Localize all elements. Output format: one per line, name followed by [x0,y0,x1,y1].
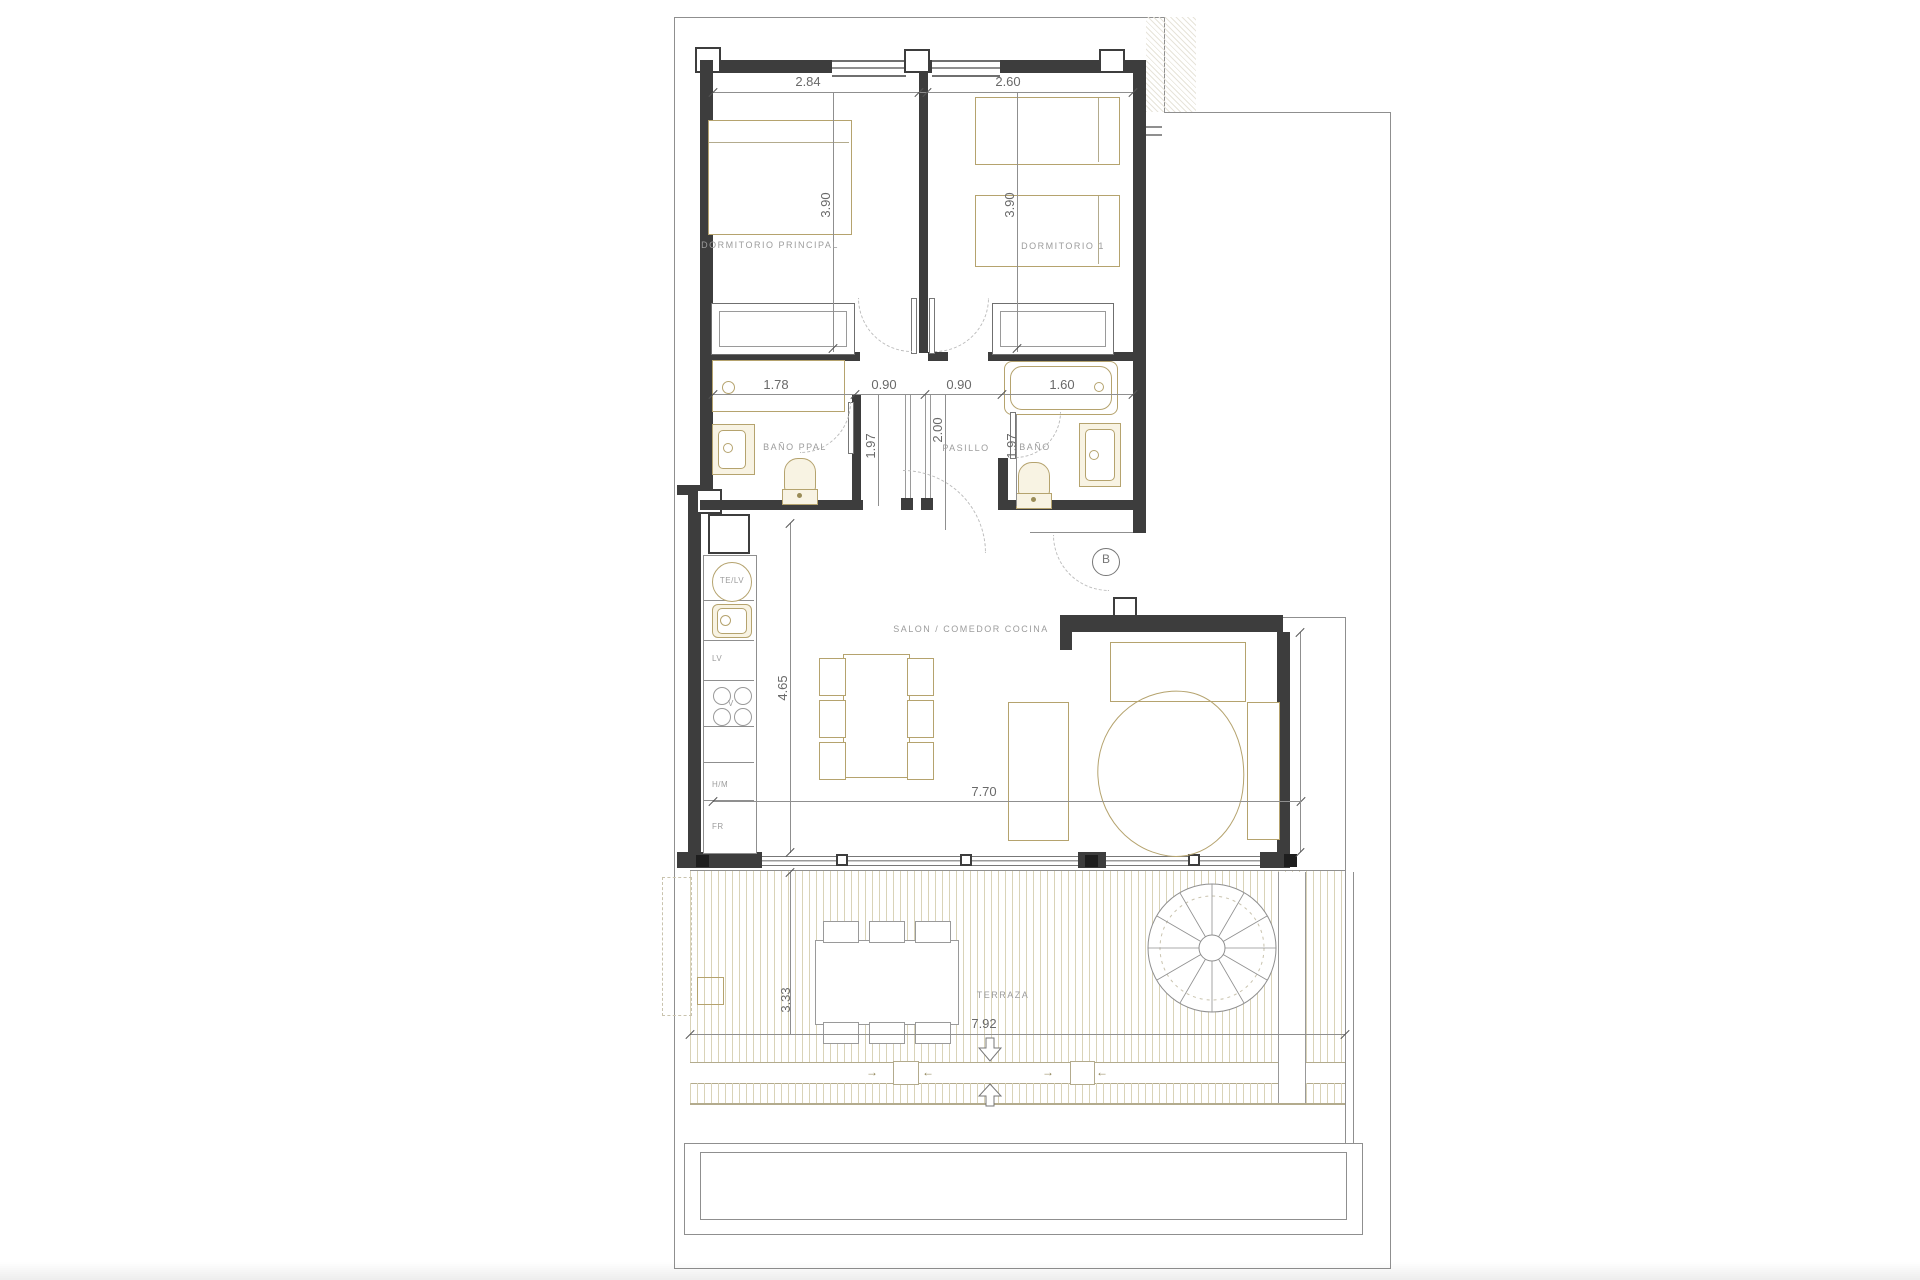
terrace-deck-end-line [690,1103,1345,1105]
dim-line [713,801,1301,802]
hob-burner [734,687,752,705]
site-border-right [1390,112,1391,1269]
wall-line-right-ext [1283,617,1345,618]
label-bano: BAÑO [995,442,1075,452]
slide-arrow-left: ← [922,1065,934,1079]
rug-blob [1086,681,1256,866]
sliding-glass-door [762,856,1078,866]
floor-plan: B [0,0,1920,1280]
bathtub-drain [1094,382,1104,392]
dim-salon-depth: 4.65 [775,663,791,713]
terrace-left-dashed-zone [662,877,692,1016]
mullion [1188,854,1200,866]
label-dorm-principal: DORMITORIO PRINCIPAL [680,240,860,250]
lower-terrace-band-inner [700,1152,1347,1220]
dim-bano-ppal-depth: 1.97 [863,421,879,471]
hob-label: V [728,699,734,708]
dining-chair [907,658,934,696]
dining-table [843,654,910,778]
kitchen-divider [704,680,754,681]
terrace-table [815,940,959,1025]
neighbour-hatch [1146,17,1196,112]
chaise-unit [1247,702,1280,840]
kitchen-sink-drain [720,615,731,626]
up-arrow-icon [975,1083,1005,1107]
boundary-line [1353,872,1354,1143]
terrace-chair [823,921,859,943]
terrace-chair [823,1022,859,1044]
dim-dorm1-depth: 3.90 [1002,180,1018,230]
slide-arrow-right: → [866,1065,878,1079]
dim-line [713,92,1133,93]
wall-entry-top [1060,615,1283,632]
site-border-step-h [1164,112,1390,113]
sideboard [1008,702,1069,841]
party-wall-tick [1146,126,1162,128]
hob-burner [734,708,752,726]
sliding-glass-door [1106,856,1260,866]
pillar [904,49,930,73]
pillar [1113,597,1137,617]
dim-hall-left: 0.90 [859,377,909,393]
washer-label: TE/LV [716,576,748,585]
down-arrow-icon [975,1037,1005,1063]
kitchen-divider [704,762,754,763]
faucet-dot [1089,450,1099,460]
dim-dorm1-width: 2.60 [983,74,1033,90]
bed-pillow-line [1098,196,1099,264]
pillar [1099,49,1125,73]
wardrobe-inner [719,311,847,347]
image-bottom-fade [0,1262,1920,1280]
door-arc-dorm-principal [858,298,912,352]
door-arc-dorm1 [935,298,989,352]
site-border-top [674,17,1165,18]
column [696,855,709,867]
terrace-right-clear-strip [1278,872,1306,1103]
party-wall-tick [1146,134,1162,136]
dim-line [690,1034,1345,1035]
dim-salon-width: 7.70 [959,784,1009,800]
dishwasher-label: LV [712,654,722,663]
window-dorm-principal [832,60,906,77]
dim-line [1300,632,1301,852]
dining-chair [907,742,934,780]
sink-bano-ppal [722,381,735,394]
wall-central-bedrooms [919,73,928,353]
dim-hall-right: 0.90 [934,377,984,393]
terrace-chair [915,921,951,943]
duct-box [708,514,750,554]
toilet-bano-bowl [1018,462,1050,497]
dim-terraza-width: 7.92 [959,1016,1009,1032]
bed-pillow-line [709,142,849,143]
toilet-dot [797,493,802,498]
slide-arrow-right: → [1042,1065,1054,1079]
spiral-staircase [1145,881,1279,1015]
mullion [960,854,972,866]
dining-chair [819,700,846,738]
wall-right-upper [1133,60,1146,533]
section-marker-b-label: B [1092,552,1120,566]
toilet-dot [1031,497,1036,502]
dining-chair [819,742,846,780]
dining-chair [907,700,934,738]
dim-terraza-depth: 3.33 [778,975,794,1025]
toilet-bano-ppal-bowl [784,458,816,493]
terrace-decking [690,1083,1345,1103]
wardrobe-inner [1000,311,1106,347]
label-dorm1: DORMITORIO 1 [973,241,1153,251]
terrace-walkway [690,1062,1345,1084]
terrace-chair [869,921,905,943]
hob-burner [713,708,731,726]
entry-lintel [1030,532,1133,533]
wall-bottom-a [677,852,762,868]
mullion [836,854,848,866]
dim-bathtub: 1.60 [1037,377,1087,393]
terrace-planter [697,977,724,1005]
fridge-label: FR [712,822,724,831]
kitchen-divider [704,726,754,727]
faucet-dot [723,443,733,453]
terrace-decking [690,1035,1345,1062]
bed-pillow-line [1098,98,1099,162]
kitchen-divider [704,640,754,641]
label-salon: SALON / COMEDOR COCINA [871,624,1071,634]
dim-dorm-principal-width: 2.84 [783,74,833,90]
dining-chair [819,658,846,696]
walkway-frame [893,1061,919,1085]
terrace-chair [869,1022,905,1044]
dim-dorm-principal-depth: 3.90 [818,180,834,230]
walkway-frame [1070,1061,1095,1085]
column [1085,855,1098,867]
dim-bano-ppal-width: 1.78 [751,377,801,393]
oven-micro-label: H/M [712,780,728,789]
label-terraza: TERRAZA [953,990,1053,1000]
slide-arrow-left: ← [1096,1065,1108,1079]
boundary-line [1345,617,1346,1143]
site-border-left [674,17,675,1269]
wall-left-lower [688,487,701,868]
label-bano-ppal: BAÑO PPAL [745,442,845,452]
terrace-chair [915,1022,951,1044]
